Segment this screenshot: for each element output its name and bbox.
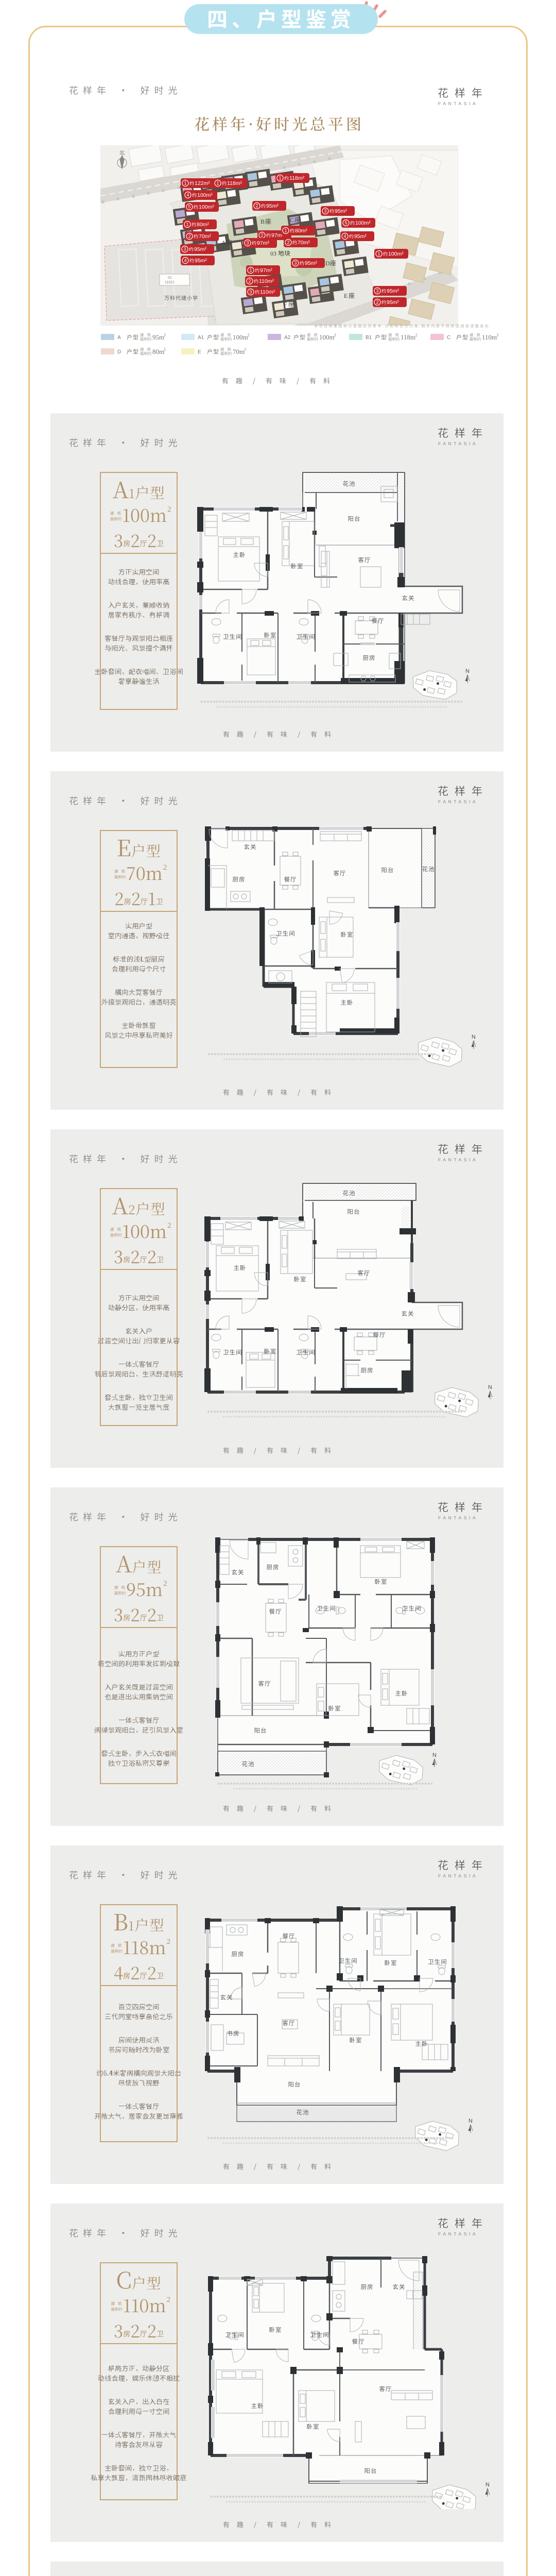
svg-text:2: 2 bbox=[376, 300, 378, 305]
svg-text:2: 2 bbox=[248, 333, 250, 337]
svg-text:95m²: 95m² bbox=[266, 203, 279, 209]
svg-text:95m²: 95m² bbox=[305, 260, 317, 266]
svg-text:C: C bbox=[447, 335, 450, 341]
svg-text:1: 1 bbox=[184, 181, 186, 186]
svg-text:2: 2 bbox=[260, 233, 263, 238]
svg-text:N: N bbox=[465, 668, 470, 674]
svg-text:3: 3 bbox=[183, 247, 186, 252]
svg-text:2: 2 bbox=[248, 279, 251, 284]
svg-text:100m²: 100m² bbox=[199, 204, 214, 210]
svg-text:FANTASIA: FANTASIA bbox=[438, 1157, 478, 1162]
svg-text:2: 2 bbox=[334, 333, 336, 337]
svg-text:80m: 80m bbox=[152, 348, 164, 355]
svg-text:B1: B1 bbox=[366, 335, 372, 341]
svg-text:3: 3 bbox=[246, 241, 249, 246]
svg-text:3: 3 bbox=[376, 289, 378, 294]
svg-text:A1: A1 bbox=[198, 335, 204, 341]
svg-text:D: D bbox=[117, 349, 121, 355]
svg-text:A2: A2 bbox=[284, 335, 291, 341]
svg-text:FANTASIA: FANTASIA bbox=[438, 2231, 478, 2236]
svg-text:118m: 118m bbox=[401, 333, 415, 341]
svg-text:4: 4 bbox=[343, 234, 346, 239]
svg-text:100m: 100m bbox=[233, 333, 248, 341]
svg-text:118m²: 118m² bbox=[289, 175, 304, 181]
svg-text:5: 5 bbox=[344, 221, 347, 226]
svg-text:95m²: 95m² bbox=[387, 299, 399, 306]
svg-text:11021: 11021 bbox=[165, 281, 175, 284]
svg-text:2: 2 bbox=[167, 2296, 171, 2304]
svg-text:97m²: 97m² bbox=[260, 267, 272, 274]
svg-text:E: E bbox=[344, 292, 347, 299]
svg-text:2: 2 bbox=[415, 333, 418, 337]
svg-text:01: 01 bbox=[168, 276, 172, 280]
svg-text:1: 1 bbox=[377, 251, 380, 257]
svg-text:2: 2 bbox=[497, 333, 499, 337]
svg-text:E: E bbox=[198, 349, 201, 355]
svg-text:N: N bbox=[468, 2118, 473, 2124]
svg-text:1: 1 bbox=[186, 222, 188, 227]
svg-text:95m: 95m bbox=[152, 333, 164, 341]
svg-text:2: 2 bbox=[164, 347, 166, 352]
svg-text:N: N bbox=[472, 1034, 476, 1040]
svg-text:80m²: 80m² bbox=[295, 228, 307, 234]
svg-text:B: B bbox=[260, 218, 265, 225]
svg-text:100m²: 100m² bbox=[355, 220, 371, 226]
svg-text:95m²: 95m² bbox=[335, 208, 347, 214]
svg-text:1: 1 bbox=[216, 181, 219, 186]
svg-text:N: N bbox=[432, 1752, 437, 1758]
svg-text:110m²: 110m² bbox=[260, 289, 275, 295]
svg-text:122m²: 122m² bbox=[195, 180, 210, 187]
svg-text:FANTASIA: FANTASIA bbox=[438, 1873, 478, 1878]
svg-text:FANTASIA: FANTASIA bbox=[438, 799, 478, 804]
svg-text:C: C bbox=[290, 216, 294, 224]
svg-text:95m²: 95m² bbox=[354, 233, 367, 240]
svg-text:A: A bbox=[117, 335, 121, 341]
svg-text:2: 2 bbox=[188, 234, 190, 239]
svg-text:2: 2 bbox=[164, 333, 166, 337]
svg-text:95m²: 95m² bbox=[387, 288, 399, 294]
svg-text:70m²: 70m² bbox=[298, 240, 310, 246]
svg-text:118m²: 118m² bbox=[227, 180, 242, 187]
svg-text:A: A bbox=[221, 239, 226, 246]
svg-text:2: 2 bbox=[167, 1222, 171, 1230]
svg-text:03: 03 bbox=[270, 250, 276, 257]
svg-text:F: F bbox=[284, 300, 287, 308]
svg-text:FANTASIA: FANTASIA bbox=[438, 1515, 478, 1520]
svg-text:2: 2 bbox=[244, 347, 246, 352]
svg-text:110m: 110m bbox=[482, 333, 497, 341]
svg-text:97m²: 97m² bbox=[257, 240, 269, 246]
svg-text:5: 5 bbox=[188, 205, 190, 210]
svg-text:80m²: 80m² bbox=[197, 222, 209, 228]
svg-text:4: 4 bbox=[186, 193, 189, 198]
svg-text:110m²: 110m² bbox=[259, 278, 274, 284]
svg-text:100m²: 100m² bbox=[197, 192, 213, 198]
svg-text:D: D bbox=[325, 260, 330, 267]
svg-text:100m²: 100m² bbox=[388, 251, 404, 257]
svg-text:100m: 100m bbox=[319, 333, 335, 341]
svg-text:3: 3 bbox=[294, 261, 297, 266]
svg-text:95m²: 95m² bbox=[195, 258, 207, 264]
svg-text:N: N bbox=[485, 2482, 490, 2488]
svg-text:95m²: 95m² bbox=[194, 246, 206, 252]
svg-text:70m²: 70m² bbox=[199, 233, 211, 240]
svg-text:2: 2 bbox=[167, 1938, 171, 1946]
svg-text:3: 3 bbox=[324, 209, 326, 214]
svg-text:70m: 70m bbox=[233, 348, 245, 355]
svg-text:3: 3 bbox=[249, 290, 252, 295]
svg-text:1: 1 bbox=[284, 228, 287, 233]
svg-text:2: 2 bbox=[287, 240, 289, 245]
svg-text:N: N bbox=[488, 1384, 492, 1391]
svg-text:2: 2 bbox=[255, 204, 258, 209]
svg-text:2: 2 bbox=[163, 1580, 167, 1588]
svg-text:4: 4 bbox=[184, 258, 186, 263]
svg-text:1: 1 bbox=[279, 176, 281, 181]
svg-text:FANTASIA: FANTASIA bbox=[438, 441, 478, 446]
svg-text:2: 2 bbox=[163, 863, 167, 872]
svg-text:1: 1 bbox=[249, 268, 252, 273]
svg-text:2: 2 bbox=[167, 505, 171, 514]
svg-text:FANTASIA: FANTASIA bbox=[438, 101, 478, 106]
